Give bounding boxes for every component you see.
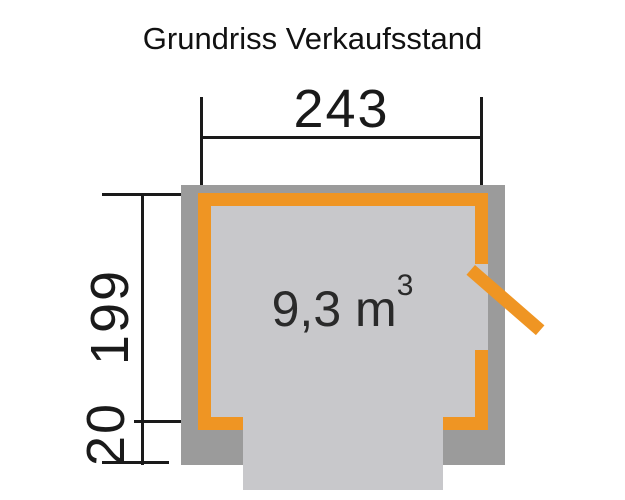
volume-exponent: 3	[397, 269, 414, 302]
counter-dim-label: 20	[79, 394, 133, 474]
depth-dim-line	[141, 193, 144, 465]
width-dim-line	[200, 136, 483, 139]
volume-label: 9,3 m3	[211, 282, 474, 337]
width-dim-label: 243	[200, 82, 483, 136]
diagram-title: Grundriss Verkaufsstand	[0, 22, 625, 56]
width-dim-tick-left	[200, 97, 203, 185]
width-dim-tick-right	[480, 97, 483, 185]
serving-counter	[243, 416, 443, 490]
counter-dim-tick	[134, 420, 182, 423]
volume-value: 9,3 m	[272, 281, 397, 337]
depth-dim-tick-top	[102, 193, 182, 196]
floorplan-diagram: Grundriss Verkaufsstand 243 199 20 9,3 m…	[0, 0, 625, 500]
depth-dim-label: 199	[83, 252, 137, 382]
